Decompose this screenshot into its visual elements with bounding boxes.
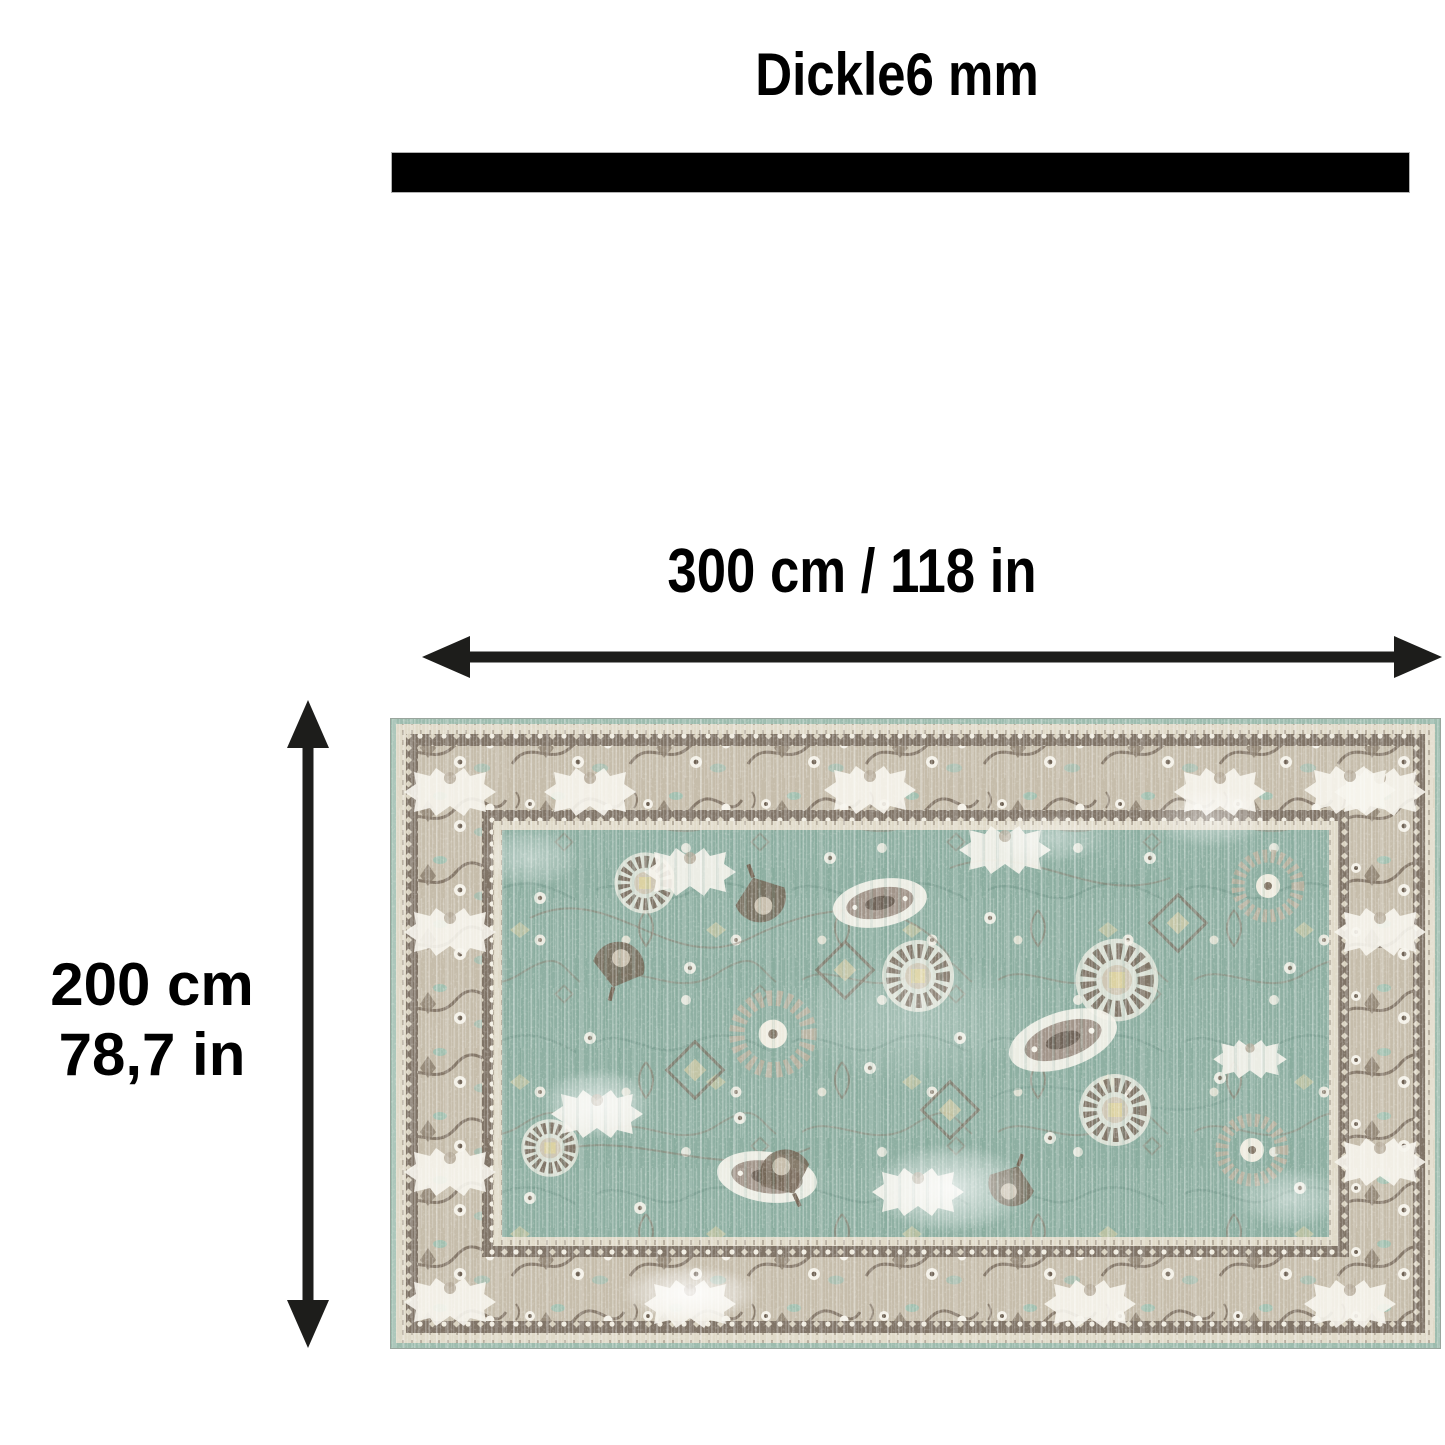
height-double-arrow-icon <box>282 694 336 1354</box>
thickness-label: Dickle6 mm <box>730 45 1064 105</box>
width-label-text: 300 cm / 118 in <box>667 541 1036 603</box>
thickness-label-text: Dickle6 mm <box>755 45 1038 105</box>
height-label-in: 78,7 in <box>50 1020 254 1090</box>
rug-product-image <box>390 718 1441 1349</box>
thickness-bar <box>391 152 1410 193</box>
width-label: 300 cm / 118 in <box>635 541 1069 603</box>
height-label-cm: 200 cm <box>50 950 254 1020</box>
width-double-arrow-icon <box>418 630 1445 684</box>
height-label: 200 cm 78,7 in <box>50 950 254 1090</box>
product-dimension-diagram: Dickle6 mm 300 cm / 118 in 200 cm 78,7 i… <box>0 0 1445 1445</box>
